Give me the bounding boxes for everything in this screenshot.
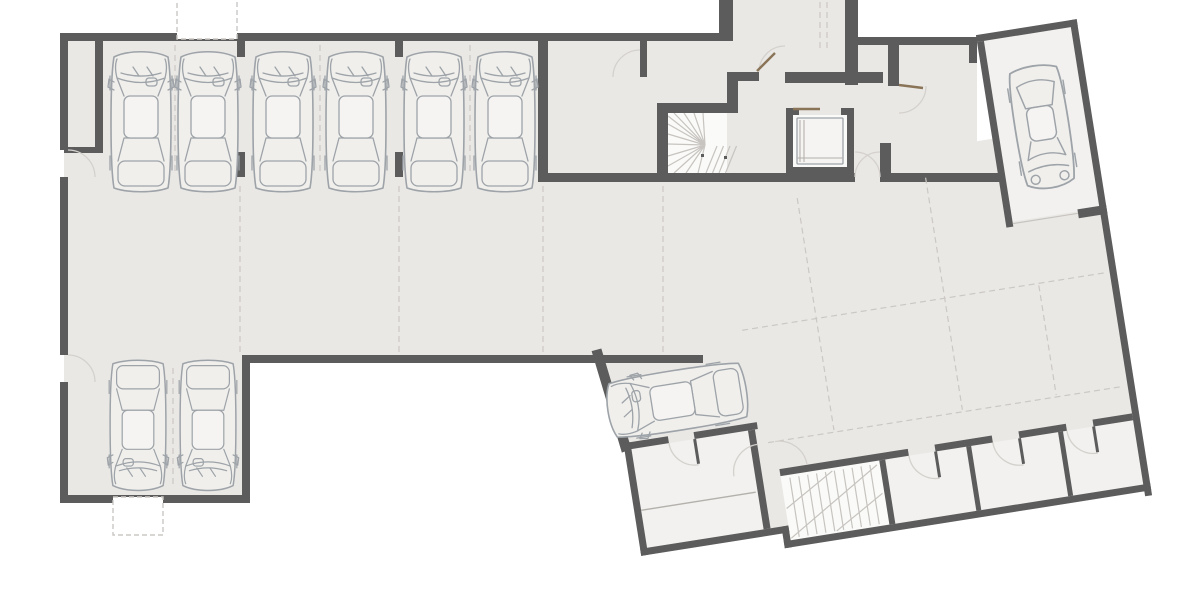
wall-top-main	[60, 33, 733, 41]
wall-stall-stub-2a	[395, 41, 403, 57]
wall-core-bottom-b	[891, 173, 1001, 182]
wall-corridor-vertical	[888, 40, 899, 86]
car-top-5	[401, 52, 467, 192]
wall-stair-top	[657, 103, 738, 113]
elevator-shaft-wall-right	[847, 108, 854, 174]
wall-vestibule-vertical	[95, 41, 103, 150]
wall-corridor-a	[733, 72, 759, 81]
elevator-shaft-wall-left	[786, 108, 793, 174]
wall-top-right	[853, 37, 977, 45]
niche-bottom	[113, 497, 163, 535]
niche-top	[177, 0, 237, 39]
wall-stair-left	[657, 103, 668, 173]
car-top-3	[250, 52, 316, 192]
wall-core-stub	[880, 143, 891, 182]
main-staircase	[668, 113, 737, 173]
wall-corridor-b	[785, 72, 883, 83]
car-top-4	[323, 52, 389, 192]
wall-core-left	[538, 41, 548, 182]
handrail-post-2	[724, 156, 727, 159]
floor-plan-svg	[0, 0, 1200, 600]
elevator	[786, 108, 854, 174]
floor-plan-page	[0, 0, 1200, 600]
wall-right-upper	[969, 37, 977, 63]
floor-plan-figure	[0, 0, 1200, 600]
car-top-2	[175, 52, 241, 192]
car-bottom-1	[107, 360, 168, 490]
elevator-shaft-wall-bottom	[786, 167, 854, 174]
wall-stall-stub-1a	[237, 41, 245, 57]
wall-stub-top-left	[719, 0, 733, 40]
wall-stall-stub-2b	[395, 152, 403, 177]
handrail-post-1	[701, 154, 704, 157]
wall-bottom-main	[242, 355, 703, 363]
wall-left-a	[60, 33, 68, 150]
car-bottom-2	[177, 360, 238, 490]
elevator-shaft-jamb-right	[841, 108, 854, 115]
wall-left-b	[60, 177, 68, 355]
wall-left-c	[60, 382, 68, 503]
wall-stub-640	[640, 41, 647, 77]
wall-core-bottom-a	[538, 173, 855, 182]
car-top-1	[108, 52, 174, 192]
car-top-6	[472, 52, 538, 192]
wall-bottom-left-right	[242, 355, 250, 503]
